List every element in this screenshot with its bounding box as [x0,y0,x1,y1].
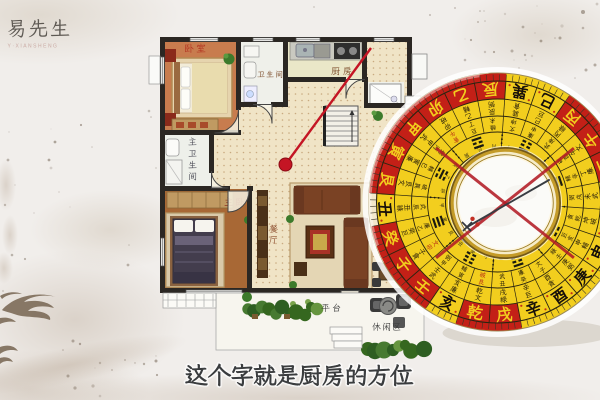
svg-text:Y·XIANSHENG: Y·XIANSHENG [8,44,59,50]
